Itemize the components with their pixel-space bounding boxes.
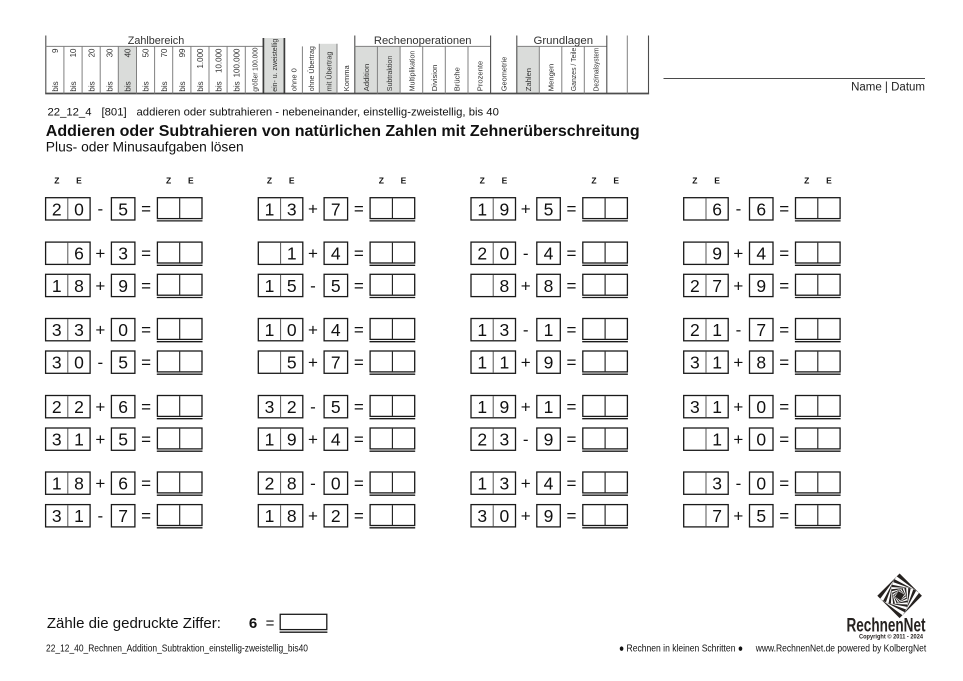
svg-text:1: 1 [712,430,722,450]
svg-text:22_12_4: 22_12_4 [48,106,92,118]
svg-text:0: 0 [287,320,297,340]
svg-text:Copyright © 2011 - 2024: Copyright © 2011 - 2024 [859,633,923,641]
svg-text:1: 1 [477,474,487,494]
svg-text:5: 5 [544,199,554,219]
svg-text:=: = [567,353,577,372]
svg-text:8: 8 [756,353,766,373]
svg-text:6: 6 [249,615,257,632]
svg-text:1: 1 [477,320,487,340]
svg-text:Z: Z [480,176,485,186]
svg-text:-: - [523,244,529,263]
svg-text:1: 1 [500,353,510,373]
svg-text:=: = [141,200,151,219]
svg-text:=: = [266,615,275,632]
svg-text:bis: bis [106,81,115,91]
svg-text:2: 2 [477,244,487,264]
svg-text:1: 1 [287,244,297,264]
svg-text:7: 7 [712,276,722,296]
svg-text:=: = [567,474,577,493]
svg-text:mit Übertrag: mit Übertrag [324,52,333,92]
svg-text:9: 9 [756,276,766,296]
svg-text:-: - [736,321,742,340]
svg-text:100.000: 100.000 [232,48,241,77]
svg-text:bis: bis [214,81,223,91]
svg-text:=: = [141,276,151,295]
svg-text:bis: bis [124,81,133,91]
svg-text:70: 70 [160,48,169,57]
svg-text:bis: bis [142,81,151,91]
svg-text:8: 8 [74,474,84,494]
svg-text:=: = [779,200,789,219]
svg-text:Z: Z [692,176,697,186]
svg-text:-: - [310,474,316,493]
svg-text:0: 0 [331,474,341,494]
svg-text:=: = [141,353,151,372]
svg-text:E: E [401,176,407,186]
svg-text:addieren oder subtrahieren - n: addieren oder subtrahieren - nebeneinand… [137,106,499,118]
svg-text:bis: bis [178,81,187,91]
svg-text:9: 9 [544,353,554,373]
svg-text:6: 6 [712,199,722,219]
svg-text:+: + [521,507,531,526]
svg-text:Dezimalsystem: Dezimalsystem [594,48,601,92]
svg-text:6: 6 [118,474,128,494]
svg-text:=: = [354,321,364,340]
svg-text:+: + [308,244,318,263]
svg-text:Z: Z [379,176,384,186]
svg-text:7: 7 [756,320,766,340]
svg-text:Z: Z [267,176,272,186]
svg-text:+: + [95,430,105,449]
svg-text:3: 3 [52,506,62,526]
svg-text:0: 0 [500,244,510,264]
svg-text:4: 4 [756,244,766,264]
svg-text:3: 3 [52,430,62,450]
svg-text:3: 3 [477,506,487,526]
svg-text:=: = [567,276,577,295]
svg-text:10.000: 10.000 [214,48,223,73]
svg-text:10: 10 [69,48,78,57]
svg-text:1: 1 [544,397,554,417]
svg-text:1: 1 [477,353,487,373]
svg-text:22_12_40_Rechnen_Addition_Subt: 22_12_40_Rechnen_Addition_Subtraktion_ei… [46,643,308,655]
svg-text:2: 2 [690,276,700,296]
svg-text:=: = [567,430,577,449]
svg-text:Rechenoperationen: Rechenoperationen [374,35,472,47]
svg-text:+: + [733,244,743,263]
svg-text:=: = [354,200,364,219]
svg-text:8: 8 [287,506,297,526]
svg-text:-: - [97,507,103,526]
svg-text:+: + [733,353,743,372]
svg-text:3: 3 [52,320,62,340]
svg-text:6: 6 [74,244,84,264]
svg-text:1: 1 [712,397,722,417]
svg-text:www.RechnenNet.de powered by K: www.RechnenNet.de powered by KolbergNet [755,643,926,655]
svg-text:=: = [779,474,789,493]
svg-text:7: 7 [331,353,341,373]
svg-text:ohne 0: ohne 0 [290,68,299,91]
svg-text:30: 30 [106,48,115,57]
svg-text:3: 3 [118,244,128,264]
svg-text:1: 1 [477,397,487,417]
svg-text:3: 3 [500,474,510,494]
svg-text:Addition: Addition [362,64,371,91]
svg-text:5: 5 [331,276,341,296]
svg-text:=: = [354,398,364,417]
svg-text:=: = [354,507,364,526]
svg-text:3: 3 [500,430,510,450]
svg-text:+: + [733,398,743,417]
svg-text:3: 3 [287,199,297,219]
svg-text:9: 9 [287,430,297,450]
svg-text:3: 3 [52,353,62,373]
svg-text:9: 9 [118,276,128,296]
svg-text:Z: Z [166,176,171,186]
svg-text:+: + [308,353,318,372]
svg-text:=: = [141,244,151,263]
svg-text:-: - [736,474,742,493]
svg-text:99: 99 [178,48,187,57]
svg-text:7: 7 [712,506,722,526]
svg-text:9: 9 [500,397,510,417]
svg-text:[801]: [801] [102,106,127,118]
svg-text:bis: bis [196,81,205,91]
svg-text:2: 2 [74,397,84,417]
svg-text:40: 40 [124,48,133,57]
svg-text:9: 9 [500,199,510,219]
svg-text:=: = [779,430,789,449]
svg-text:3: 3 [690,397,700,417]
svg-text:=: = [779,276,789,295]
svg-text:+: + [95,321,105,340]
svg-text:Ganzes / Teile: Ganzes / Teile [571,48,578,92]
svg-text:-: - [310,276,316,295]
svg-text:E: E [188,176,194,186]
svg-text:bis: bis [51,81,60,91]
svg-text:ohne Übertrag: ohne Übertrag [307,46,316,91]
svg-text:E: E [714,176,720,186]
svg-text:E: E [613,176,619,186]
svg-text:E: E [502,176,508,186]
svg-text:=: = [354,474,364,493]
svg-text:=: = [567,321,577,340]
svg-text:=: = [779,353,789,372]
svg-text:Z: Z [804,176,809,186]
svg-text:=: = [354,276,364,295]
svg-text:ein- u. zweistellig: ein- u. zweistellig [272,39,279,92]
svg-text:=: = [567,244,577,263]
svg-text:8: 8 [287,474,297,494]
svg-text:E: E [826,176,832,186]
svg-text:Addieren oder Subtrahieren von: Addieren oder Subtrahieren von natürlich… [46,123,640,140]
svg-text:9: 9 [712,244,722,264]
svg-text:-: - [523,430,529,449]
svg-text:=: = [567,200,577,219]
svg-text:E: E [76,176,82,186]
svg-text:+: + [521,474,531,493]
svg-text:3: 3 [265,397,275,417]
svg-text:0: 0 [118,320,128,340]
svg-text:bis: bis [87,81,96,91]
svg-text:1: 1 [544,320,554,340]
svg-text:bis: bis [69,81,78,91]
svg-text:+: + [308,200,318,219]
svg-text:=: = [779,321,789,340]
svg-text:0: 0 [756,430,766,450]
svg-text:+: + [95,276,105,295]
svg-text:50: 50 [142,48,151,57]
svg-text:+: + [308,507,318,526]
svg-text:5: 5 [118,430,128,450]
svg-text:1: 1 [265,276,275,296]
svg-text:0: 0 [74,199,84,219]
svg-text:3: 3 [74,320,84,340]
svg-text:Brüche: Brüche [453,67,462,91]
svg-text:=: = [779,507,789,526]
svg-text:3: 3 [500,320,510,340]
svg-text:1: 1 [74,506,84,526]
svg-text:5: 5 [287,276,297,296]
svg-text:-: - [523,321,529,340]
svg-text:● Rechnen in kleinen Schritten: ● Rechnen in kleinen Schritten ● [619,643,743,655]
svg-text:=: = [779,398,789,417]
svg-text:9: 9 [544,506,554,526]
svg-text:+: + [733,276,743,295]
svg-text:-: - [97,353,103,372]
svg-text:2: 2 [331,506,341,526]
svg-text:+: + [308,321,318,340]
svg-text:0: 0 [74,353,84,373]
svg-text:6: 6 [756,199,766,219]
svg-text:Z: Z [54,176,59,186]
svg-text:1: 1 [52,474,62,494]
svg-text:6: 6 [118,397,128,417]
svg-text:1: 1 [265,199,275,219]
svg-text:5: 5 [756,506,766,526]
svg-text:1: 1 [477,199,487,219]
svg-text:+: + [521,398,531,417]
svg-text:-: - [97,200,103,219]
svg-text:Zähle die gedruckte Ziffer:: Zähle die gedruckte Ziffer: [47,615,221,632]
svg-text:3: 3 [712,474,722,494]
svg-text:=: = [354,430,364,449]
svg-text:+: + [521,200,531,219]
svg-text:-: - [310,398,316,417]
svg-text:1.000: 1.000 [196,48,205,69]
svg-text:=: = [141,430,151,449]
svg-text:1: 1 [712,353,722,373]
svg-text:7: 7 [331,199,341,219]
svg-text:1: 1 [52,276,62,296]
svg-text:+: + [95,474,105,493]
svg-text:=: = [141,321,151,340]
svg-text:=: = [141,398,151,417]
svg-text:4: 4 [544,244,554,264]
svg-text:+: + [521,353,531,372]
svg-text:1: 1 [265,506,275,526]
svg-text:1: 1 [712,320,722,340]
svg-text:4: 4 [544,474,554,494]
svg-text:+: + [95,398,105,417]
svg-text:2: 2 [477,430,487,450]
svg-text:Geometrie: Geometrie [500,57,509,92]
svg-text:=: = [354,353,364,372]
svg-text:Z: Z [591,176,596,186]
svg-text:0: 0 [756,397,766,417]
svg-text:4: 4 [331,320,341,340]
svg-text:+: + [733,430,743,449]
svg-text:=: = [354,244,364,263]
svg-text:=: = [567,398,577,417]
svg-text:2: 2 [52,199,62,219]
svg-text:E: E [289,176,295,186]
svg-text:=: = [141,474,151,493]
svg-text:0: 0 [500,506,510,526]
svg-text:=: = [141,507,151,526]
svg-text:1: 1 [265,320,275,340]
svg-text:Grundlagen: Grundlagen [534,35,594,47]
svg-text:Zahlen: Zahlen [524,68,533,91]
svg-text:bis: bis [160,81,169,91]
svg-text:2: 2 [690,320,700,340]
svg-text:Prozente: Prozente [475,61,484,91]
svg-text:3: 3 [690,353,700,373]
svg-text:Multiplikation: Multiplikation [409,51,416,92]
svg-text:Komma: Komma [342,65,351,92]
svg-text:8: 8 [544,276,554,296]
svg-text:2: 2 [287,397,297,417]
svg-text:Division: Division [430,65,439,92]
svg-text:9: 9 [51,48,60,53]
svg-text:+: + [308,430,318,449]
svg-text:5: 5 [287,353,297,373]
svg-text:+: + [95,244,105,263]
svg-text:=: = [567,507,577,526]
svg-text:4: 4 [331,430,341,450]
svg-text:0: 0 [756,474,766,494]
svg-text:größer 100.000: größer 100.000 [253,48,260,92]
svg-text:Subtraktion: Subtraktion [387,56,394,92]
svg-text:bis: bis [232,81,241,91]
svg-text:1: 1 [265,430,275,450]
svg-text:5: 5 [118,353,128,373]
svg-text:8: 8 [500,276,510,296]
svg-text:-: - [736,200,742,219]
svg-text:5: 5 [118,199,128,219]
svg-text:Zahlbereich: Zahlbereich [128,35,184,47]
svg-text:2: 2 [52,397,62,417]
svg-text:Name | Datum: Name | Datum [851,82,925,94]
svg-text:4: 4 [331,244,341,264]
svg-text:2: 2 [265,474,275,494]
svg-text:+: + [733,507,743,526]
svg-text:9: 9 [544,430,554,450]
svg-text:20: 20 [87,48,96,57]
svg-text:+: + [521,276,531,295]
svg-text:=: = [779,244,789,263]
svg-text:1: 1 [74,430,84,450]
svg-text:Plus- oder Minusaufgaben lösen: Plus- oder Minusaufgaben lösen [46,140,244,155]
svg-text:7: 7 [118,506,128,526]
svg-text:8: 8 [74,276,84,296]
svg-text:Mengen: Mengen [547,64,556,91]
svg-text:5: 5 [331,397,341,417]
